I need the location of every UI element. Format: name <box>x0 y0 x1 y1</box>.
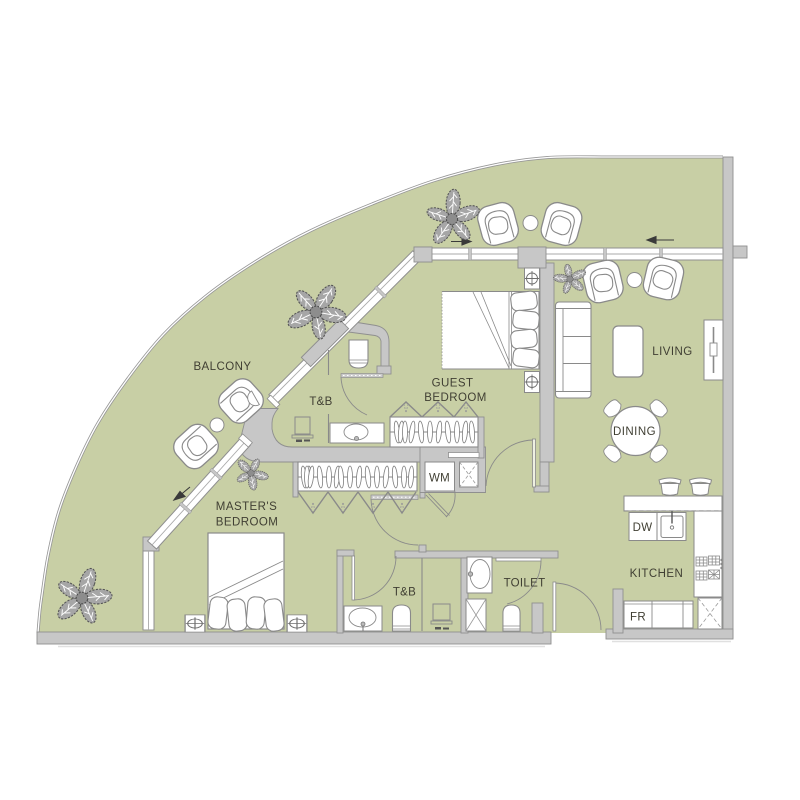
svg-text:T&B: T&B <box>393 587 416 599</box>
svg-text:DW: DW <box>633 522 653 534</box>
svg-text:WM: WM <box>429 473 450 485</box>
svg-text:GUEST: GUEST <box>432 378 474 390</box>
svg-text:DINING: DINING <box>613 426 656 438</box>
svg-text:KITCHEN: KITCHEN <box>630 568 684 580</box>
svg-text:BALCONY: BALCONY <box>193 361 251 373</box>
svg-text:BEDROOM: BEDROOM <box>216 517 279 529</box>
svg-text:LIVING: LIVING <box>652 346 692 358</box>
svg-text:MASTER'S: MASTER'S <box>216 501 277 513</box>
svg-text:BEDROOM: BEDROOM <box>424 392 487 404</box>
svg-text:TOILET: TOILET <box>504 578 546 590</box>
svg-text:T&B: T&B <box>309 396 332 408</box>
svg-text:FR: FR <box>630 612 646 624</box>
